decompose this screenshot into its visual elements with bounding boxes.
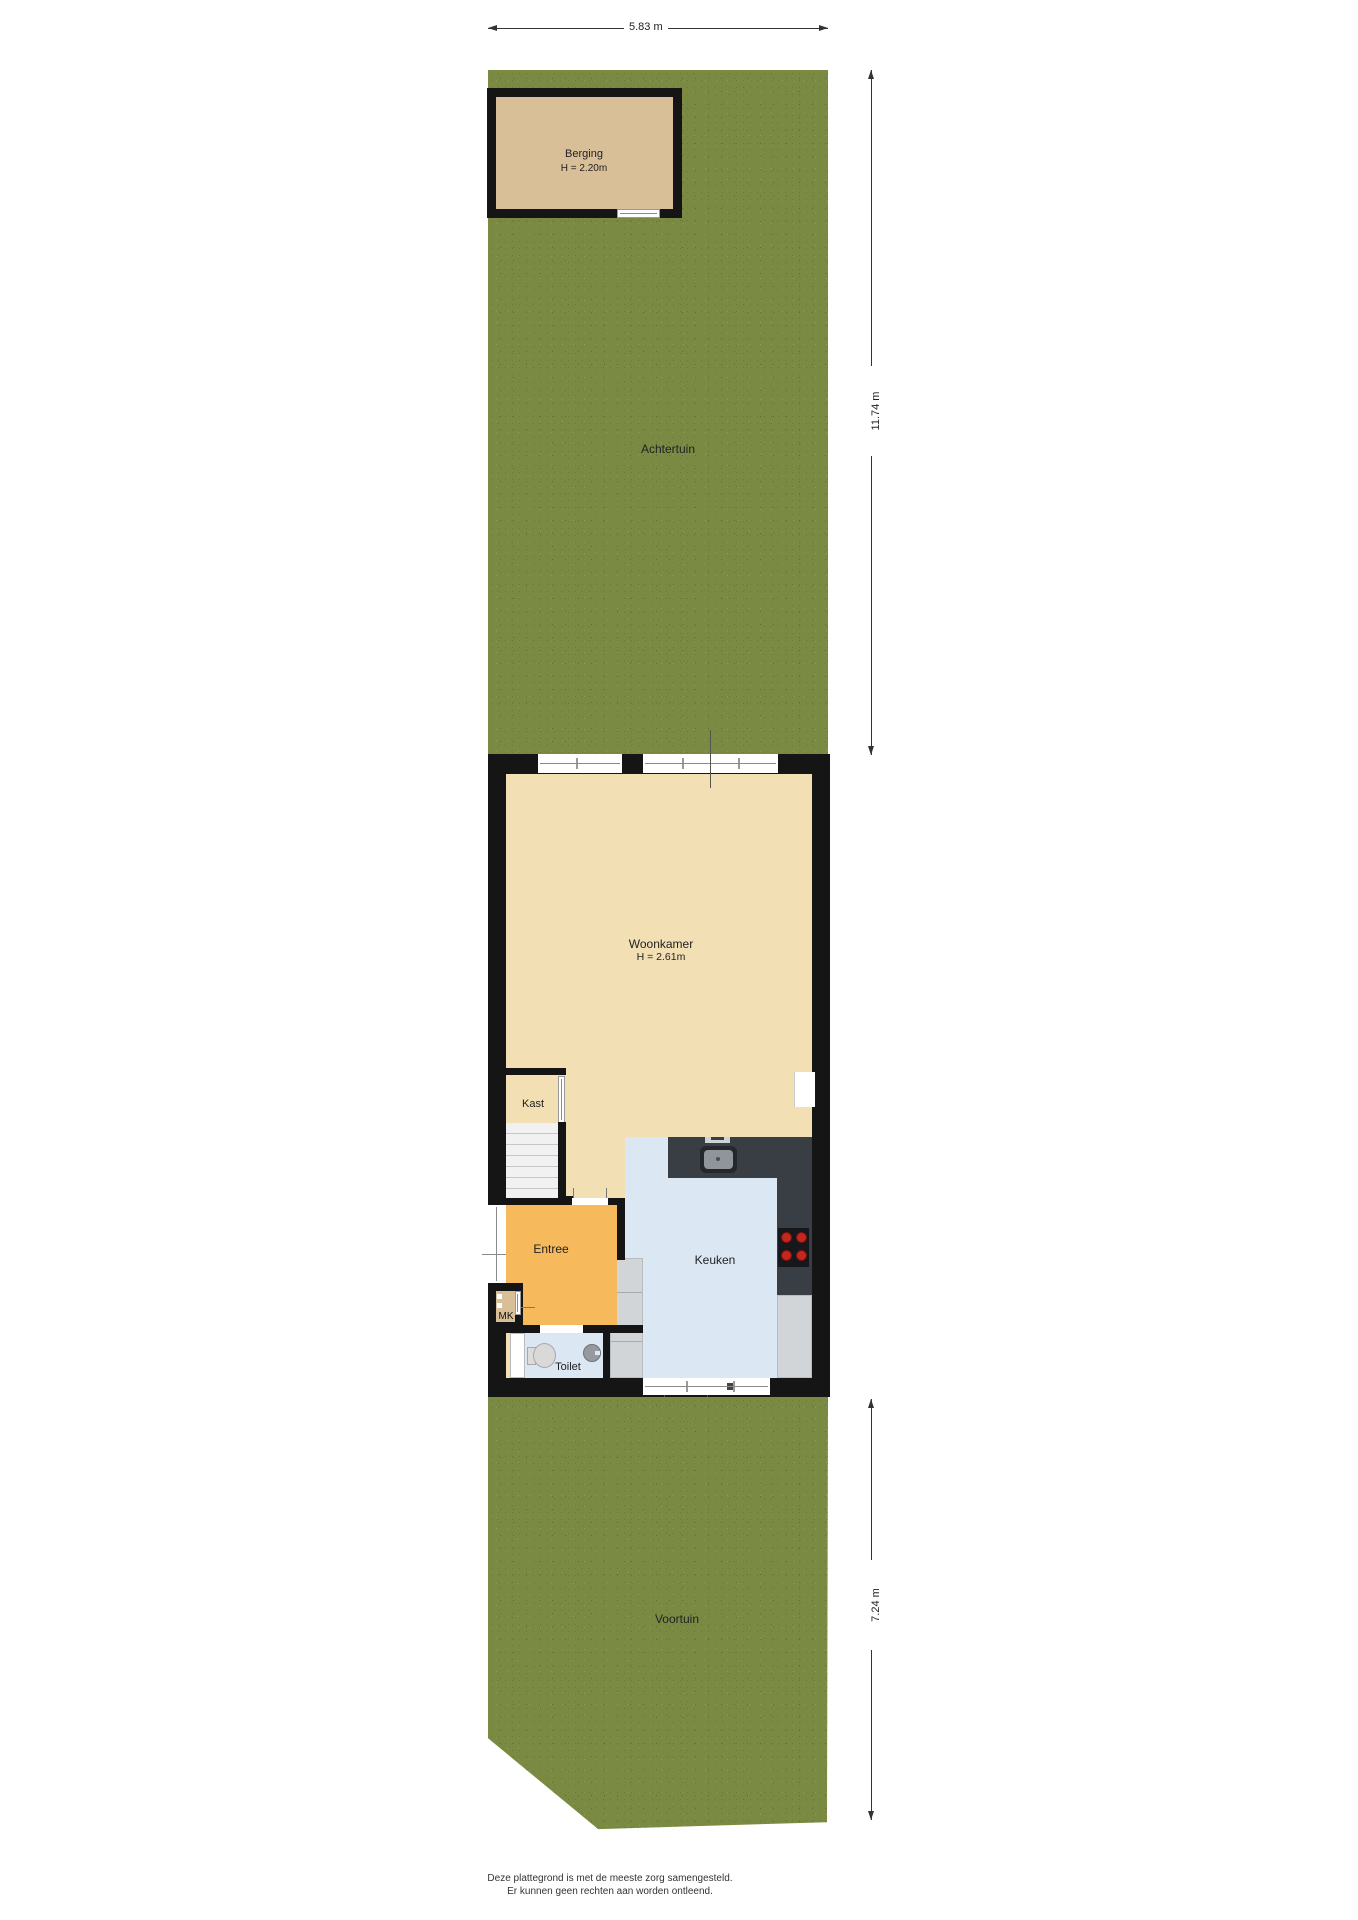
kitchen-counter-top — [668, 1137, 812, 1178]
faucet-handle-icon — [705, 1137, 711, 1143]
burner-icon — [796, 1232, 807, 1243]
voortuin-label: Voortuin — [577, 1612, 777, 1626]
meter-panel-icon — [497, 1294, 502, 1299]
berging-door — [617, 209, 660, 218]
section-line — [710, 730, 711, 788]
footer-disclaimer: Deze plattegrond is met de meeste zorg s… — [410, 1872, 810, 1898]
kast-wall-top — [506, 1068, 566, 1075]
window-top-left — [538, 754, 622, 773]
floorplan-page: 5.83 m Achtertuin Berging H = 2.20m 11.7… — [0, 0, 1358, 1920]
cooktop-icon — [778, 1228, 809, 1267]
window-mullion — [686, 1381, 688, 1392]
window-mullion — [576, 758, 578, 769]
burner-icon — [781, 1250, 792, 1261]
dimension-arrow-up-icon — [868, 1399, 874, 1408]
berging-label: Berging — [509, 148, 659, 160]
window-mullion — [682, 758, 684, 769]
dimension-arrow-down-icon — [868, 746, 874, 755]
toilet-door-opening — [540, 1325, 583, 1333]
faucet-handle-icon — [724, 1137, 730, 1143]
entree-wall-right — [617, 1198, 625, 1260]
meter-panel-icon — [497, 1303, 502, 1308]
berging-height-label: H = 2.20m — [509, 163, 659, 174]
kitchen-sink-icon — [700, 1146, 737, 1173]
footer-line-1: Deze plattegrond is met de meeste zorg s… — [410, 1872, 810, 1885]
woonkamer-height-label: H = 2.61m — [586, 951, 736, 963]
door-swing-tick — [521, 1307, 535, 1308]
cabinet-divider — [611, 1341, 642, 1342]
mk-label: MK — [481, 1311, 531, 1322]
dimension-arrow-left-icon — [488, 25, 497, 31]
door-swing-tick — [606, 1188, 607, 1198]
dimension-arrow-up-icon — [868, 70, 874, 79]
plot-width-label: 5.83 m — [624, 20, 668, 34]
front-garden-depth-label: 7.24 m — [869, 1560, 883, 1650]
dimension-arrow-down-icon — [868, 1811, 874, 1820]
stairs-wall — [558, 1122, 566, 1200]
entree-door-opening — [572, 1198, 608, 1205]
kast-label: Kast — [483, 1098, 583, 1110]
door-swing-tick — [573, 1188, 574, 1198]
window-mullion — [738, 758, 740, 769]
window-bottom — [643, 1378, 770, 1395]
keuken-label: Keuken — [665, 1253, 765, 1267]
staircase — [506, 1123, 558, 1200]
entree-window — [488, 1205, 506, 1283]
kitchen-cabinet-right — [777, 1295, 812, 1378]
window-mullion-tick — [482, 1254, 506, 1255]
toilet-basin-icon — [583, 1344, 601, 1362]
wall-niche — [794, 1072, 815, 1107]
burner-icon — [781, 1232, 792, 1243]
door-hinge-icon — [727, 1383, 733, 1390]
window-mullion — [733, 1381, 735, 1392]
entree-label: Entree — [501, 1242, 601, 1256]
sink-drain — [716, 1157, 720, 1161]
woonkamer-label: Woonkamer — [586, 937, 736, 951]
burner-icon — [796, 1250, 807, 1261]
back-garden-depth-label: 11.74 m — [869, 366, 883, 456]
basin-spout — [595, 1351, 600, 1355]
dimension-arrow-right-icon — [819, 25, 828, 31]
toilet-wall-right — [603, 1333, 610, 1378]
entree-wall-top — [506, 1198, 572, 1205]
footer-line-2: Er kunnen geen rechten aan worden ontlee… — [410, 1885, 810, 1898]
achtertuin-label: Achtertuin — [568, 442, 768, 456]
